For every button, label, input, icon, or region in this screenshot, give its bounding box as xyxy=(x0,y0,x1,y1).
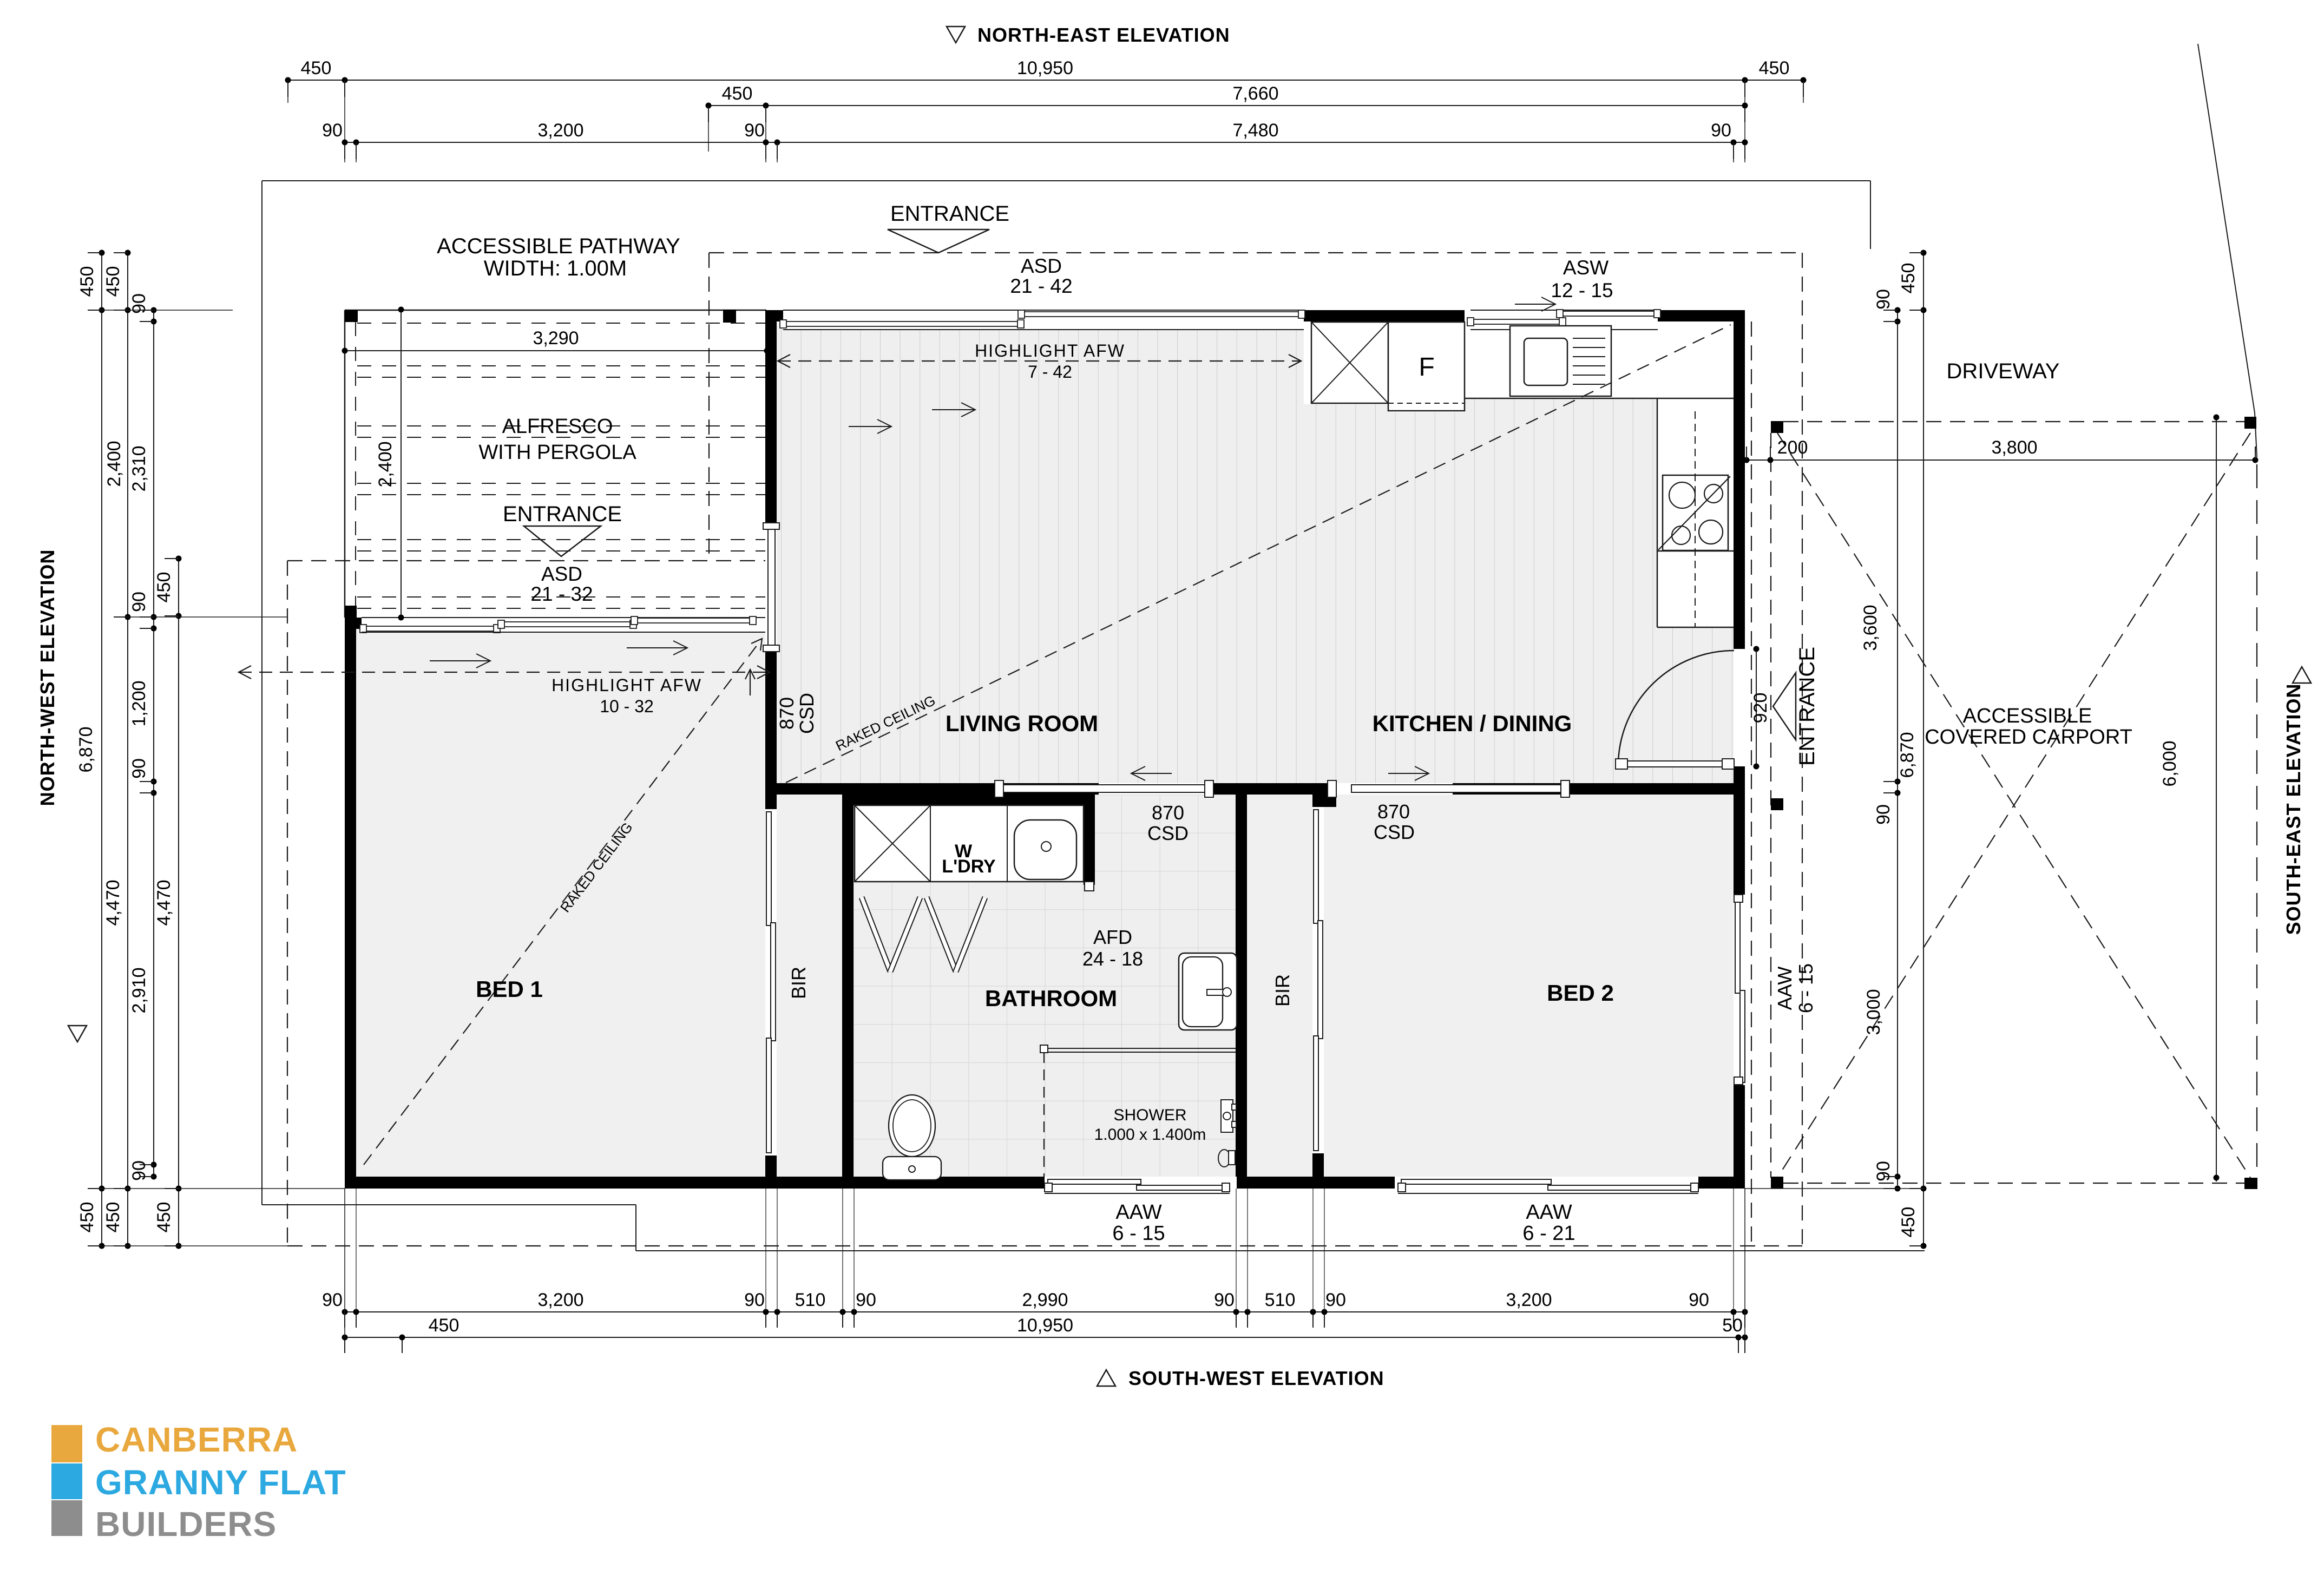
svg-text:450: 450 xyxy=(1898,263,1919,294)
svg-text:4,470: 4,470 xyxy=(154,879,174,925)
svg-text:HIGHLIGHT AFW: HIGHLIGHT AFW xyxy=(552,675,702,695)
svg-text:AAW: AAW xyxy=(1774,967,1796,1010)
svg-text:BED 2: BED 2 xyxy=(1547,980,1614,1006)
svg-text:90: 90 xyxy=(744,1290,765,1310)
svg-text:870: 870 xyxy=(776,697,798,730)
svg-text:450: 450 xyxy=(301,58,332,78)
svg-text:510: 510 xyxy=(795,1290,826,1310)
svg-text:7,480: 7,480 xyxy=(1232,120,1278,141)
svg-text:AFD: AFD xyxy=(1093,926,1132,948)
svg-text:1.000 x 1.400m: 1.000 x 1.400m xyxy=(1094,1126,1206,1144)
svg-text:6,870: 6,870 xyxy=(1897,732,1918,778)
svg-text:870: 870 xyxy=(1377,800,1410,823)
svg-text:KITCHEN / DINING: KITCHEN / DINING xyxy=(1373,711,1572,736)
svg-text:450: 450 xyxy=(429,1315,459,1336)
svg-text:3,000: 3,000 xyxy=(1863,989,1884,1035)
svg-text:21 - 42: 21 - 42 xyxy=(1010,275,1072,297)
svg-text:450: 450 xyxy=(1898,1207,1919,1238)
svg-text:90: 90 xyxy=(129,1160,149,1181)
svg-text:BATHROOM: BATHROOM xyxy=(985,986,1117,1011)
svg-text:2,990: 2,990 xyxy=(1022,1290,1068,1310)
svg-text:10 - 32: 10 - 32 xyxy=(600,697,654,716)
svg-text:NORTH-WEST ELEVATION: NORTH-WEST ELEVATION xyxy=(36,549,58,806)
svg-text:7,660: 7,660 xyxy=(1232,83,1278,104)
svg-text:HIGHLIGHT AFW: HIGHLIGHT AFW xyxy=(975,341,1125,360)
svg-text:ENTRANCE: ENTRANCE xyxy=(1795,647,1819,766)
svg-text:COVERED CARPORT: COVERED CARPORT xyxy=(1925,726,2132,749)
svg-text:450: 450 xyxy=(154,1202,174,1233)
svg-text:450: 450 xyxy=(722,83,753,104)
svg-text:SOUTH-WEST ELEVATION: SOUTH-WEST ELEVATION xyxy=(1128,1367,1384,1389)
svg-text:90: 90 xyxy=(1689,1290,1709,1310)
svg-text:510: 510 xyxy=(1265,1290,1296,1310)
svg-text:F: F xyxy=(1419,353,1434,382)
svg-text:6 - 15: 6 - 15 xyxy=(1112,1222,1165,1245)
svg-text:450: 450 xyxy=(77,266,97,297)
svg-text:CSD: CSD xyxy=(1374,821,1415,843)
svg-text:6 - 21: 6 - 21 xyxy=(1522,1222,1575,1245)
svg-text:450: 450 xyxy=(1759,58,1790,78)
svg-text:3,290: 3,290 xyxy=(533,328,579,349)
svg-text:870: 870 xyxy=(1152,802,1184,824)
svg-text:6,870: 6,870 xyxy=(76,726,96,772)
svg-text:ACCESSIBLE: ACCESSIBLE xyxy=(1963,705,2092,727)
svg-text:AAW: AAW xyxy=(1115,1201,1161,1224)
svg-text:90: 90 xyxy=(1214,1290,1235,1310)
svg-text:450: 450 xyxy=(103,266,123,297)
svg-text:450: 450 xyxy=(154,572,174,603)
svg-text:LIVING ROOM: LIVING ROOM xyxy=(946,711,1098,736)
svg-text:90: 90 xyxy=(1325,1290,1346,1310)
svg-text:CANBERRA: CANBERRA xyxy=(95,1420,298,1459)
svg-text:WIDTH: 1.00M: WIDTH: 1.00M xyxy=(484,257,627,280)
svg-text:90: 90 xyxy=(1873,1161,1894,1181)
svg-text:DRIVEWAY: DRIVEWAY xyxy=(1947,359,2060,383)
svg-text:24 - 18: 24 - 18 xyxy=(1082,948,1143,970)
svg-text:L'DRY: L'DRY xyxy=(942,856,996,877)
svg-text:3,200: 3,200 xyxy=(537,1290,583,1310)
svg-text:ACCESSIBLE PATHWAY: ACCESSIBLE PATHWAY xyxy=(437,234,680,258)
svg-text:AAW: AAW xyxy=(1526,1201,1572,1224)
svg-text:6 - 15: 6 - 15 xyxy=(1795,963,1817,1013)
svg-text:ENTRANCE: ENTRANCE xyxy=(890,202,1009,226)
svg-text:90: 90 xyxy=(322,1290,343,1310)
svg-text:6,000: 6,000 xyxy=(2159,740,2180,786)
svg-text:ASW: ASW xyxy=(1563,257,1609,279)
svg-text:WITH PERGOLA: WITH PERGOLA xyxy=(478,441,636,464)
svg-text:450: 450 xyxy=(77,1202,97,1233)
svg-text:90: 90 xyxy=(129,758,149,779)
svg-text:4,470: 4,470 xyxy=(103,879,123,925)
svg-text:BED 1: BED 1 xyxy=(476,976,543,1002)
svg-text:2,400: 2,400 xyxy=(104,441,124,487)
svg-text:450: 450 xyxy=(103,1202,123,1233)
svg-text:1,200: 1,200 xyxy=(129,680,149,726)
svg-text:12 - 15: 12 - 15 xyxy=(1551,279,1613,301)
svg-text:ENTRANCE: ENTRANCE xyxy=(503,502,622,526)
svg-text:200: 200 xyxy=(1777,437,1808,458)
svg-text:90: 90 xyxy=(129,592,149,612)
svg-text:NORTH-EAST ELEVATION: NORTH-EAST ELEVATION xyxy=(977,24,1230,46)
svg-text:10,950: 10,950 xyxy=(1017,1315,1073,1336)
svg-text:10,950: 10,950 xyxy=(1017,58,1073,78)
svg-text:90: 90 xyxy=(856,1290,876,1310)
svg-text:2,310: 2,310 xyxy=(129,445,149,491)
svg-text:ALFRESCO: ALFRESCO xyxy=(502,415,613,438)
svg-text:SHOWER: SHOWER xyxy=(1114,1106,1187,1124)
svg-text:BIR: BIR xyxy=(787,967,810,999)
svg-text:3,600: 3,600 xyxy=(1860,605,1881,651)
svg-text:ASD: ASD xyxy=(541,563,582,585)
svg-text:2,910: 2,910 xyxy=(129,967,149,1013)
svg-text:7 - 42: 7 - 42 xyxy=(1028,362,1072,382)
svg-text:90: 90 xyxy=(1873,804,1894,825)
svg-text:BIR: BIR xyxy=(1271,974,1294,1007)
svg-text:90: 90 xyxy=(129,293,149,314)
svg-text:90: 90 xyxy=(1873,289,1894,310)
svg-text:CSD: CSD xyxy=(1147,822,1189,844)
svg-text:ASD: ASD xyxy=(1021,255,1062,277)
svg-text:90: 90 xyxy=(322,120,343,141)
svg-text:3,200: 3,200 xyxy=(1506,1290,1552,1310)
svg-text:50: 50 xyxy=(1722,1315,1743,1336)
svg-text:21 - 32: 21 - 32 xyxy=(530,583,593,605)
svg-text:GRANNY FLAT: GRANNY FLAT xyxy=(95,1463,346,1502)
svg-text:90: 90 xyxy=(1711,120,1731,141)
svg-text:2,400: 2,400 xyxy=(375,441,396,487)
svg-text:SOUTH-EAST ELEVATION: SOUTH-EAST ELEVATION xyxy=(2282,684,2305,935)
svg-text:920: 920 xyxy=(1750,693,1771,724)
svg-text:CSD: CSD xyxy=(796,693,818,734)
svg-text:BUILDERS: BUILDERS xyxy=(95,1505,277,1544)
svg-text:3,800: 3,800 xyxy=(1991,437,2037,458)
svg-text:90: 90 xyxy=(744,120,765,141)
svg-text:3,200: 3,200 xyxy=(537,120,583,141)
